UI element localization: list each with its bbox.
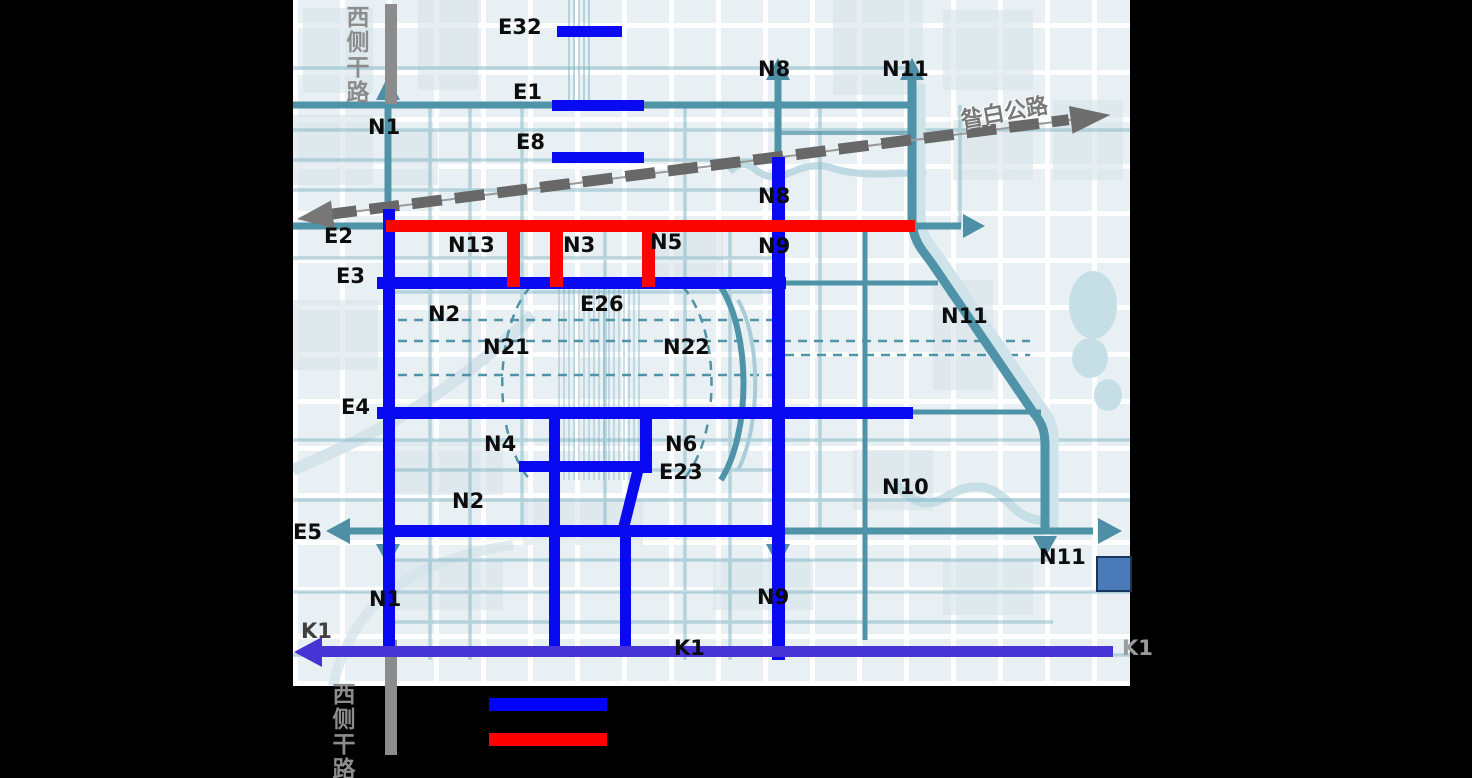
label-n11-bottom: N11: [1039, 545, 1086, 569]
road-n6-lower: [620, 531, 631, 656]
label-e23: E23: [659, 460, 703, 484]
road-e8-segment: [552, 152, 644, 163]
label-n10: N10: [882, 475, 929, 499]
road-e1-segment: [552, 100, 644, 111]
label-e26: E26: [580, 292, 624, 316]
label-k1-right: K1: [1122, 636, 1153, 660]
blue-square-marker: [1096, 556, 1132, 592]
road-n3-red-stub: [550, 220, 563, 287]
label-n8-mid: N8: [758, 184, 790, 208]
label-e4: E4: [341, 395, 370, 419]
label-e32: E32: [498, 15, 542, 39]
legend-blue-line: [489, 698, 607, 711]
label-n11-top: N11: [882, 57, 929, 81]
label-n13: N13: [448, 233, 495, 257]
label-n11-mid: N11: [941, 304, 988, 328]
road-n1-vertical: [383, 209, 395, 647]
label-n21: N21: [483, 335, 530, 359]
label-k1-mid: K1: [674, 636, 705, 660]
highway-hatch-top: [565, 0, 591, 105]
label-n2-upper: N2: [428, 302, 460, 326]
label-n5: N5: [650, 230, 682, 254]
road-e5: [383, 525, 778, 537]
label-e8: E8: [516, 130, 545, 154]
city-blocks: [293, 0, 1123, 615]
label-n6: N6: [665, 432, 697, 456]
label-n4: N4: [484, 432, 516, 456]
label-n3: N3: [563, 233, 595, 257]
west-trunk-road-bar-bottom: [385, 640, 397, 755]
road-planning-map-page: E32E1E8N1N8N11E2N13N3N5N8N9E3N2N21E26N22…: [0, 0, 1472, 778]
label-n1-top: N1: [368, 115, 400, 139]
highway-arrowhead-right: [1069, 101, 1112, 134]
label-e1: E1: [513, 80, 542, 104]
label-n1-bottom: N1: [369, 587, 401, 611]
label-n8-top: N8: [758, 57, 790, 81]
label-e3: E3: [336, 264, 365, 288]
loop-arcs: [721, 287, 755, 480]
road-e32-segment: [557, 26, 622, 37]
label-e2: E2: [324, 224, 353, 248]
west-trunk-road-bar-top: [385, 4, 397, 104]
road-e3: [377, 277, 786, 289]
label-e5: E5: [293, 520, 322, 544]
road-k1: [310, 646, 1113, 657]
pond-shapes: [1069, 271, 1122, 411]
legend-red-line: [489, 733, 607, 746]
label-n9-bottom: N9: [757, 585, 789, 609]
label-west-top: 西侧干路: [342, 5, 368, 105]
label-n9-mid: N9: [758, 234, 790, 258]
label-n22: N22: [663, 335, 710, 359]
label-k1-left: K1: [301, 619, 332, 643]
label-west-bottom: 西侧干路: [328, 682, 354, 778]
road-n13-red-stub: [507, 220, 520, 287]
label-n2-lower: N2: [452, 489, 484, 513]
